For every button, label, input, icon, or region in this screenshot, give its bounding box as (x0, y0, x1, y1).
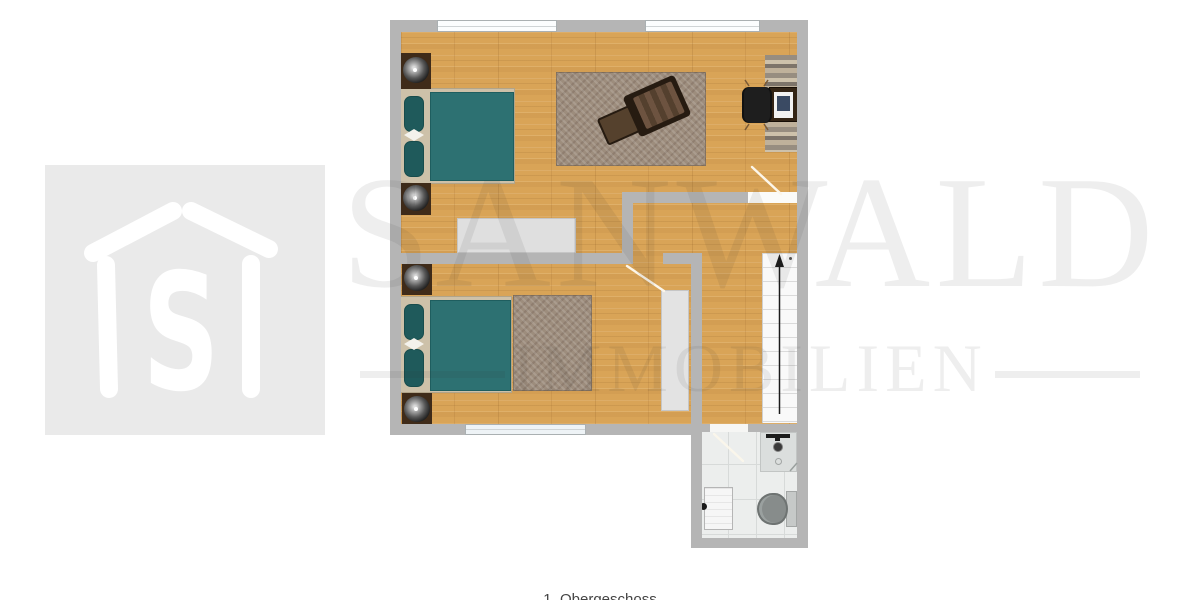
bed-pillow (404, 141, 424, 177)
house-logo-icon: S (45, 165, 325, 435)
window (437, 20, 557, 32)
bedroom2-rug (513, 295, 592, 391)
wall-segment (691, 253, 702, 435)
laptop-icon (774, 92, 793, 118)
bed-pillow (404, 96, 424, 132)
watermark-dash-right (995, 371, 1140, 378)
bedside-lamp-icon (401, 183, 431, 215)
wall-segment (691, 538, 808, 548)
shower (760, 432, 797, 472)
door-opening (710, 424, 748, 432)
bed-pillow (404, 304, 424, 340)
watermark-dash-left (360, 371, 505, 378)
door-opening (748, 192, 797, 203)
bedside-lamp-icon (402, 263, 432, 295)
toilet (757, 493, 788, 525)
logo-monogram: S (142, 240, 219, 428)
wall-segment (691, 424, 702, 548)
bedside-lamp-icon (401, 53, 431, 89)
wall-segment (797, 20, 808, 548)
shower-head-icon (773, 442, 783, 452)
bedside-lamp-icon (402, 393, 432, 426)
bed-pillow (404, 349, 424, 387)
floor-plan-page: S (0, 0, 1200, 600)
wall-segment (622, 192, 748, 203)
wall-segment (401, 253, 622, 264)
wardrobe-hallway (661, 290, 689, 411)
wardrobe-bedroom-top (457, 218, 576, 253)
bed-blanket (430, 92, 514, 181)
double-bed-top (400, 88, 515, 184)
stair-post-dot (789, 257, 792, 260)
window (645, 20, 760, 32)
logo-wall-left (106, 265, 109, 389)
wall-segment (702, 424, 710, 432)
staircase (762, 253, 797, 423)
floor-caption: 1. Obergeschoss (543, 591, 656, 600)
window (465, 424, 586, 435)
shower-drain-icon (775, 458, 782, 465)
pillow-gap (404, 338, 424, 350)
radiator (704, 487, 733, 530)
wall-segment (748, 424, 797, 432)
desk (769, 87, 798, 122)
agency-logo: S (45, 165, 325, 435)
double-bed-bottom (400, 296, 512, 393)
office-chair (744, 87, 770, 123)
